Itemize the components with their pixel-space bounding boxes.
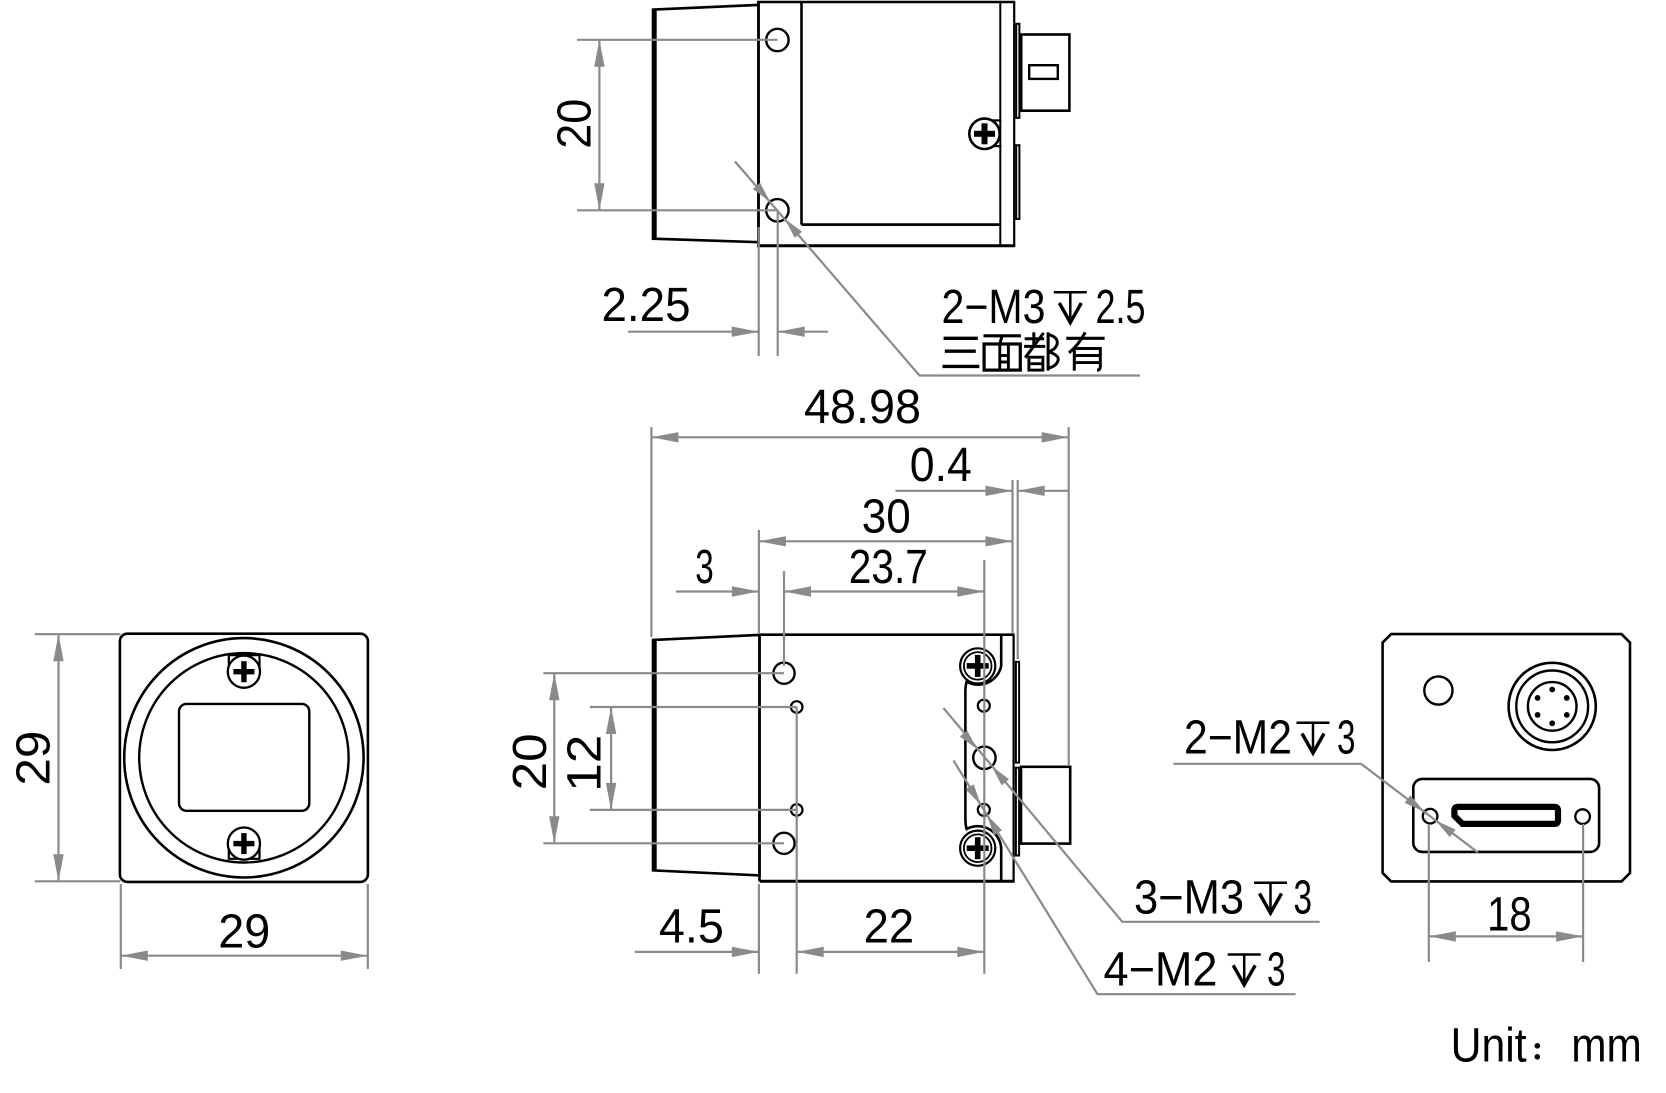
svg-text:3−M3: 3−M3 — [1134, 872, 1244, 925]
svg-text:12: 12 — [559, 735, 612, 792]
svg-text:4−M2: 4−M2 — [1104, 943, 1218, 996]
svg-text:20: 20 — [548, 99, 601, 149]
svg-text:0.4: 0.4 — [910, 439, 972, 492]
svg-text:29: 29 — [7, 731, 60, 786]
svg-text:29: 29 — [218, 906, 270, 959]
svg-text:23.7: 23.7 — [849, 541, 928, 594]
svg-text:3: 3 — [1337, 712, 1356, 765]
svg-text:18: 18 — [1487, 888, 1532, 941]
svg-text:2.5: 2.5 — [1096, 281, 1146, 334]
svg-text:2.25: 2.25 — [602, 279, 691, 332]
svg-text:4.5: 4.5 — [659, 901, 724, 954]
svg-text:2−M3: 2−M3 — [942, 281, 1046, 334]
svg-text:3: 3 — [1267, 943, 1286, 996]
svg-text:48.98: 48.98 — [804, 381, 921, 434]
svg-text:22: 22 — [864, 901, 915, 954]
svg-text:20: 20 — [504, 733, 557, 790]
svg-text:2−M2: 2−M2 — [1184, 712, 1292, 765]
svg-text:3: 3 — [695, 541, 714, 594]
svg-text:30: 30 — [862, 491, 911, 544]
svg-text:mm: mm — [1571, 1020, 1642, 1073]
svg-text:Unit: Unit — [1451, 1020, 1527, 1073]
svg-text:3: 3 — [1294, 872, 1313, 925]
